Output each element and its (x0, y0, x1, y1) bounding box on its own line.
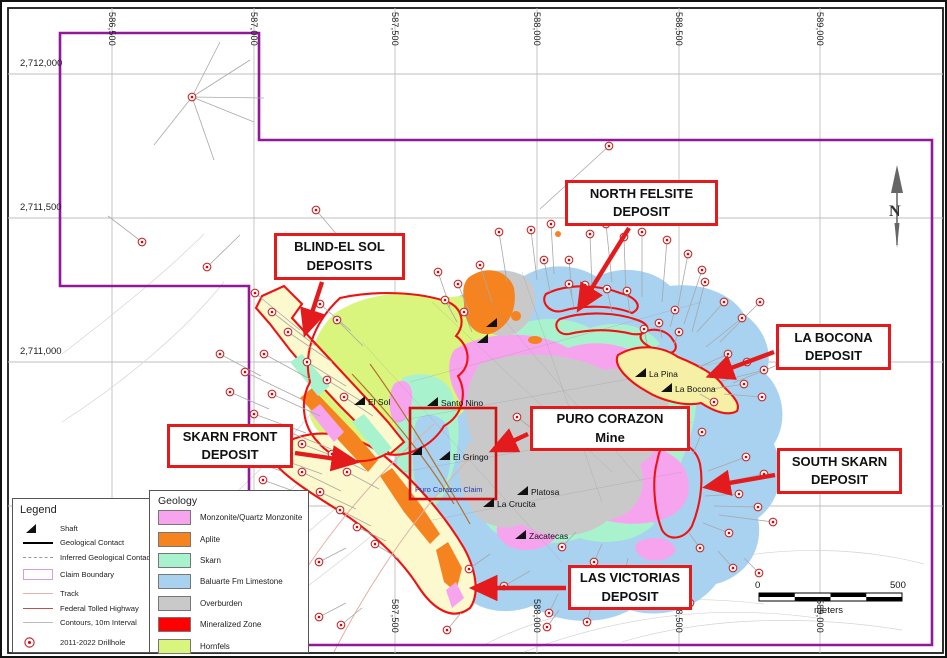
drillhole-symbol (729, 564, 737, 572)
drillhole-symbol (698, 428, 706, 436)
drillhole-symbol (527, 226, 535, 234)
drillhole-symbol (315, 613, 323, 621)
north-arrow-tail (895, 223, 900, 248)
geology-color-swatch (158, 510, 191, 525)
drillhole-fan-line (192, 42, 220, 97)
drillhole-symbol (315, 558, 323, 566)
drillhole-symbol (454, 280, 462, 288)
drillhole-symbol (755, 569, 763, 577)
drillhole-leader-line (220, 354, 261, 376)
legend-item-label: Inferred Geological Contact (60, 553, 152, 562)
geology-legend-item: Mineralized Zone (158, 614, 302, 635)
drillhole-symbol (605, 142, 613, 150)
drillhole-symbol (760, 366, 768, 374)
legend-item-highway: Federal Tolled Highway (23, 601, 155, 616)
legend-title: Legend (20, 504, 57, 516)
deposit-callout-la-bocona: LA BOCONADEPOSIT (776, 324, 891, 370)
deposit-callout-text: DEPOSIT (601, 588, 658, 606)
geology-legend-label: Monzonite/Quartz Monzonite (200, 513, 302, 522)
drillhole-symbol (434, 268, 442, 276)
deposit-callout-text: PURO CORAZON (557, 410, 664, 428)
drillhole-symbol (558, 543, 566, 551)
drillhole-leader-line (319, 603, 346, 617)
drillhole-symbol (303, 358, 311, 366)
drillhole-symbol (735, 490, 743, 498)
geology-legend-label: Skarn (200, 556, 221, 565)
deposit-callout-text: SKARN FRONT (183, 428, 278, 446)
drillhole-symbol (547, 220, 555, 228)
drillhole-symbol (443, 626, 451, 634)
deposit-callout-blind-el-sol: BLIND-EL SOLDEPOSITS (274, 233, 405, 280)
geology-legend-item: Baluarte Fm Limestone (158, 571, 302, 592)
deposit-callout-puro-corazon: PURO CORAZONMine (530, 406, 690, 451)
drillhole-symbol (738, 314, 746, 322)
drillhole-symbol (203, 263, 211, 271)
grid-label-easting: 589,000 (815, 12, 825, 46)
legend-item-contour: Contours, 10m Interval (23, 616, 155, 631)
deposit-callout-text: DEPOSIT (201, 446, 258, 464)
legend-item-label: Geological Contact (60, 538, 124, 547)
drillhole-symbol (371, 540, 379, 548)
drillhole-symbol (586, 230, 594, 238)
drillhole-symbol (565, 256, 573, 264)
drillhole-symbol (603, 285, 611, 293)
legend-item-track: Track (23, 587, 155, 602)
mine-label: El Gringo (453, 452, 489, 462)
geology-color-swatch (158, 639, 191, 654)
drillhole-symbol (742, 453, 750, 461)
geology-aplite (511, 311, 521, 321)
mine-label: Zacatecas (529, 531, 568, 541)
drillhole-symbol (684, 250, 692, 258)
drillhole-leader-line (108, 216, 142, 242)
scale-max: 500 (890, 580, 906, 591)
deposit-callout-text: LA BOCONA (794, 329, 872, 347)
drillhole-fan-line (192, 97, 264, 98)
drillhole-symbol (756, 298, 764, 306)
grid-label-northing: 2,712,000 (20, 58, 62, 69)
legend-item-label: Federal Tolled Highway (60, 604, 139, 613)
legend-item-label: Shaft (60, 524, 78, 533)
legend-item-label: 2011-2022 Drillhole (60, 638, 125, 647)
legend-item-claim: Claim Boundary (23, 565, 155, 584)
geology-legend-items: Monzonite/Quartz MonzoniteApliteSkarnBal… (158, 507, 302, 657)
mine-label: Santo Nino (441, 398, 483, 408)
drillhole-symbol (337, 621, 345, 629)
grid-label-easting: 586,500 (107, 12, 117, 46)
drillhole-leader-line (551, 224, 554, 274)
geological-map-figure: Puro Corazon Claim Santo NinoEl SolEl Gr… (0, 0, 947, 658)
drillhole-symbol (312, 206, 320, 214)
drillhole-symbol (543, 623, 551, 631)
track-symbol (23, 593, 53, 594)
legend-item-shaft: Shaft (23, 521, 155, 536)
drillhole-symbol (758, 393, 766, 401)
drillhole-symbol (663, 236, 671, 244)
drillhole-symbol (698, 266, 706, 274)
geology-legend-item: Overburden (158, 593, 302, 614)
highway-symbol (23, 608, 53, 609)
geology-legend-item: Hornfels (158, 635, 302, 656)
scale-bar: 0 500 meters (755, 580, 906, 616)
deposit-callout-north-felsite: NORTH FELSITEDEPOSIT (565, 180, 718, 226)
deposit-callout-text: LAS VICTORIAS (580, 569, 680, 587)
drillhole-symbol (623, 287, 631, 295)
drillhole-symbol (23, 636, 53, 649)
deposit-callout-south-skarn: SOUTH SKARNDEPOSIT (777, 448, 902, 494)
deposit-callout-text: DEPOSITS (307, 257, 373, 275)
drillhole-symbol (298, 468, 306, 476)
drillhole-leader-line (207, 235, 240, 267)
drillhole-symbol (720, 298, 728, 306)
drillhole-symbol (671, 306, 679, 314)
drillhole-symbol (353, 523, 361, 531)
deposit-callout-text: Mine (595, 429, 625, 447)
deposit-callout-text: DEPOSIT (811, 471, 868, 489)
drillhole-symbol (316, 488, 324, 496)
grid-label-easting: 588,000 (532, 12, 542, 46)
deposit-callout-text: NORTH FELSITE (590, 185, 693, 203)
drillhole-symbol (655, 319, 663, 327)
mine-label: El Sol (368, 397, 390, 407)
drillhole-symbol (343, 468, 351, 476)
north-label: N (889, 203, 901, 220)
drillhole-symbol (725, 529, 733, 537)
deposit-callout-las-victorias: LAS VICTORIASDEPOSIT (568, 565, 692, 610)
geology-legend-label: Overburden (200, 599, 242, 608)
grid-label-northing: 2,711,500 (20, 202, 62, 213)
mine-label: La Crucita (497, 499, 536, 509)
drillhole-symbol (241, 368, 249, 376)
drillhole-symbol (298, 440, 306, 448)
drillhole-symbol (696, 544, 704, 552)
drillhole-symbol (513, 413, 521, 421)
geology-color-swatch (158, 553, 191, 568)
drillhole-symbol (441, 296, 449, 304)
geology-legend-title: Geology (158, 495, 302, 507)
legend-item-inferred: Inferred Geological Contact (23, 550, 155, 565)
geology-legend-item: Skarn (158, 550, 302, 571)
drillhole-symbol (226, 388, 234, 396)
drillhole-fan-line (192, 60, 250, 97)
drillhole-symbol (323, 376, 331, 384)
deposit-callout-text: BLIND-EL SOL (294, 238, 385, 256)
drillhole-symbol (640, 325, 648, 333)
deposit-callout-text: DEPOSIT (805, 347, 862, 365)
drillhole-fan-line (154, 97, 192, 145)
puro-corazon-claim-label: Puro Corazon Claim (415, 485, 483, 494)
drillhole-symbol (495, 228, 503, 236)
shaft-symbol (23, 523, 53, 534)
legend-item-drillhole: 2011-2022 Drillhole (23, 634, 155, 651)
mine-label: La Bocona (675, 384, 716, 394)
drillhole-symbol (675, 328, 683, 336)
drillhole-symbol (251, 289, 259, 297)
grid-label-northing: 2,711,000 (20, 346, 62, 357)
geology-color-swatch (158, 532, 191, 547)
drillhole-symbol (268, 308, 276, 316)
drillhole-symbol (638, 228, 646, 236)
legend-item-contact: Geological Contact (23, 536, 155, 551)
drillhole-symbol (340, 393, 348, 401)
legend-items: ShaftGeological ContactInferred Geologic… (23, 521, 155, 651)
grid-label-easting: 589,000 (815, 599, 825, 633)
drillhole-symbol (565, 280, 573, 288)
inferred-symbol (23, 557, 53, 558)
geology-legend-label: Mineralized Zone (200, 620, 261, 629)
geology-color-swatch (158, 596, 191, 611)
legend-item-label: Claim Boundary (60, 570, 114, 579)
drillhole-symbol (216, 350, 224, 358)
deposit-callout-text: SOUTH SKARN (792, 453, 887, 471)
drillhole-symbol (336, 506, 344, 514)
drillhole-symbol (540, 256, 548, 264)
geology-color-swatch (158, 574, 191, 589)
scale-zero: 0 (755, 580, 760, 591)
grid-label-easting: 588,000 (532, 599, 542, 633)
deposit-callout-text: DEPOSIT (613, 203, 670, 221)
claim-symbol (23, 569, 53, 580)
drillhole-leader-line (192, 97, 214, 160)
grid-label-easting: 587,500 (390, 12, 400, 46)
drillhole-symbol (583, 618, 591, 626)
drillhole-symbol (701, 278, 709, 286)
geology-legend-label: Hornfels (200, 642, 230, 651)
contour-symbol (23, 622, 53, 623)
legend-item-label: Track (60, 589, 79, 598)
geology-color-swatch (158, 617, 191, 632)
mine-label: Platosa (531, 487, 560, 497)
drillhole-symbol (476, 261, 484, 269)
mine-label: La Pina (649, 369, 678, 379)
contact-symbol (23, 542, 53, 544)
drillhole-symbol (710, 398, 718, 406)
drillhole-symbol (581, 281, 589, 289)
deposit-callout-skarn-front: SKARN FRONTDEPOSIT (167, 424, 293, 468)
geology-legend-label: Aplite (200, 535, 220, 544)
legend-item-label: Contours, 10m Interval (60, 618, 137, 627)
drillhole-symbol (260, 350, 268, 358)
drillhole-symbol (333, 316, 341, 324)
grid-label-easting: 588,500 (674, 12, 684, 46)
geology-legend-panel: Geology Monzonite/Quartz MonzoniteAplite… (149, 490, 309, 653)
drillhole-symbol (284, 328, 292, 336)
drillhole-symbol (460, 308, 468, 316)
drillhole-symbol (740, 380, 748, 388)
drillhole-symbol (754, 503, 762, 511)
drillhole-symbol (268, 390, 276, 398)
geology-legend-label: Baluarte Fm Limestone (200, 577, 283, 586)
north-arrow-head (891, 165, 903, 193)
drillhole-symbol (138, 238, 146, 246)
drillhole-symbol (259, 476, 267, 484)
drillhole-fan-line (192, 97, 254, 122)
drillhole-symbol (250, 410, 258, 418)
drillhole-symbol (545, 609, 553, 617)
geology-legend-item: Aplite (158, 528, 302, 549)
geology-aplite (528, 336, 542, 344)
drillhole-symbol (465, 565, 473, 573)
drillhole-symbol (769, 518, 777, 526)
geology-aplite (555, 231, 561, 237)
grid-label-easting: 587,500 (390, 599, 400, 633)
drillhole-symbol (188, 93, 196, 101)
geology-legend-item: Monzonite/Quartz Monzonite (158, 507, 302, 528)
drillhole-symbol (724, 350, 732, 358)
grid-label-easting: 587,000 (249, 12, 259, 46)
north-arrow: N (889, 165, 903, 248)
